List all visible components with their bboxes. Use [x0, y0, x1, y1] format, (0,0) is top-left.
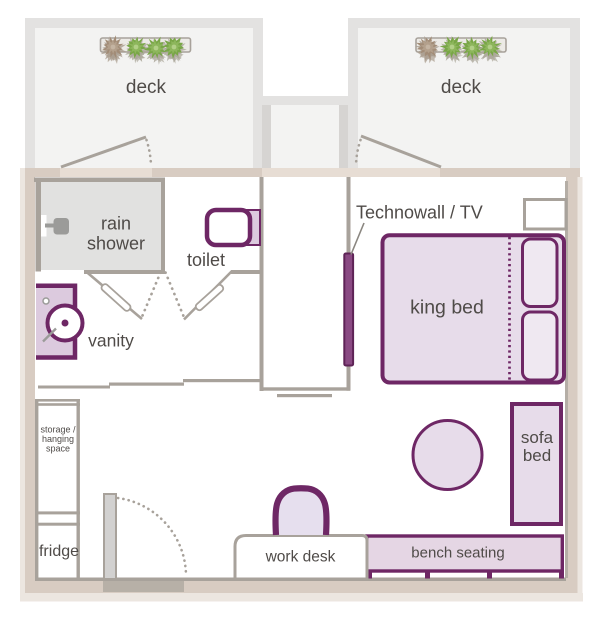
svg-text:deck: deck — [126, 77, 167, 98]
svg-text:work desk: work desk — [265, 549, 336, 566]
svg-text:rain: rain — [101, 214, 131, 234]
svg-text:king bed: king bed — [410, 297, 484, 319]
svg-text:vanity: vanity — [88, 331, 134, 351]
svg-text:fridge: fridge — [39, 543, 79, 560]
svg-text:toilet: toilet — [187, 250, 225, 270]
svg-text:shower: shower — [87, 234, 145, 254]
svg-text:bench seating: bench seating — [411, 545, 504, 562]
svg-text:hanging: hanging — [42, 434, 74, 444]
svg-text:deck: deck — [441, 77, 482, 98]
svg-text:space: space — [46, 444, 70, 454]
svg-text:bed: bed — [523, 446, 551, 465]
svg-text:storage /: storage / — [40, 425, 76, 435]
svg-text:Technowall / TV: Technowall / TV — [356, 203, 483, 223]
svg-text:sofa: sofa — [521, 428, 554, 447]
